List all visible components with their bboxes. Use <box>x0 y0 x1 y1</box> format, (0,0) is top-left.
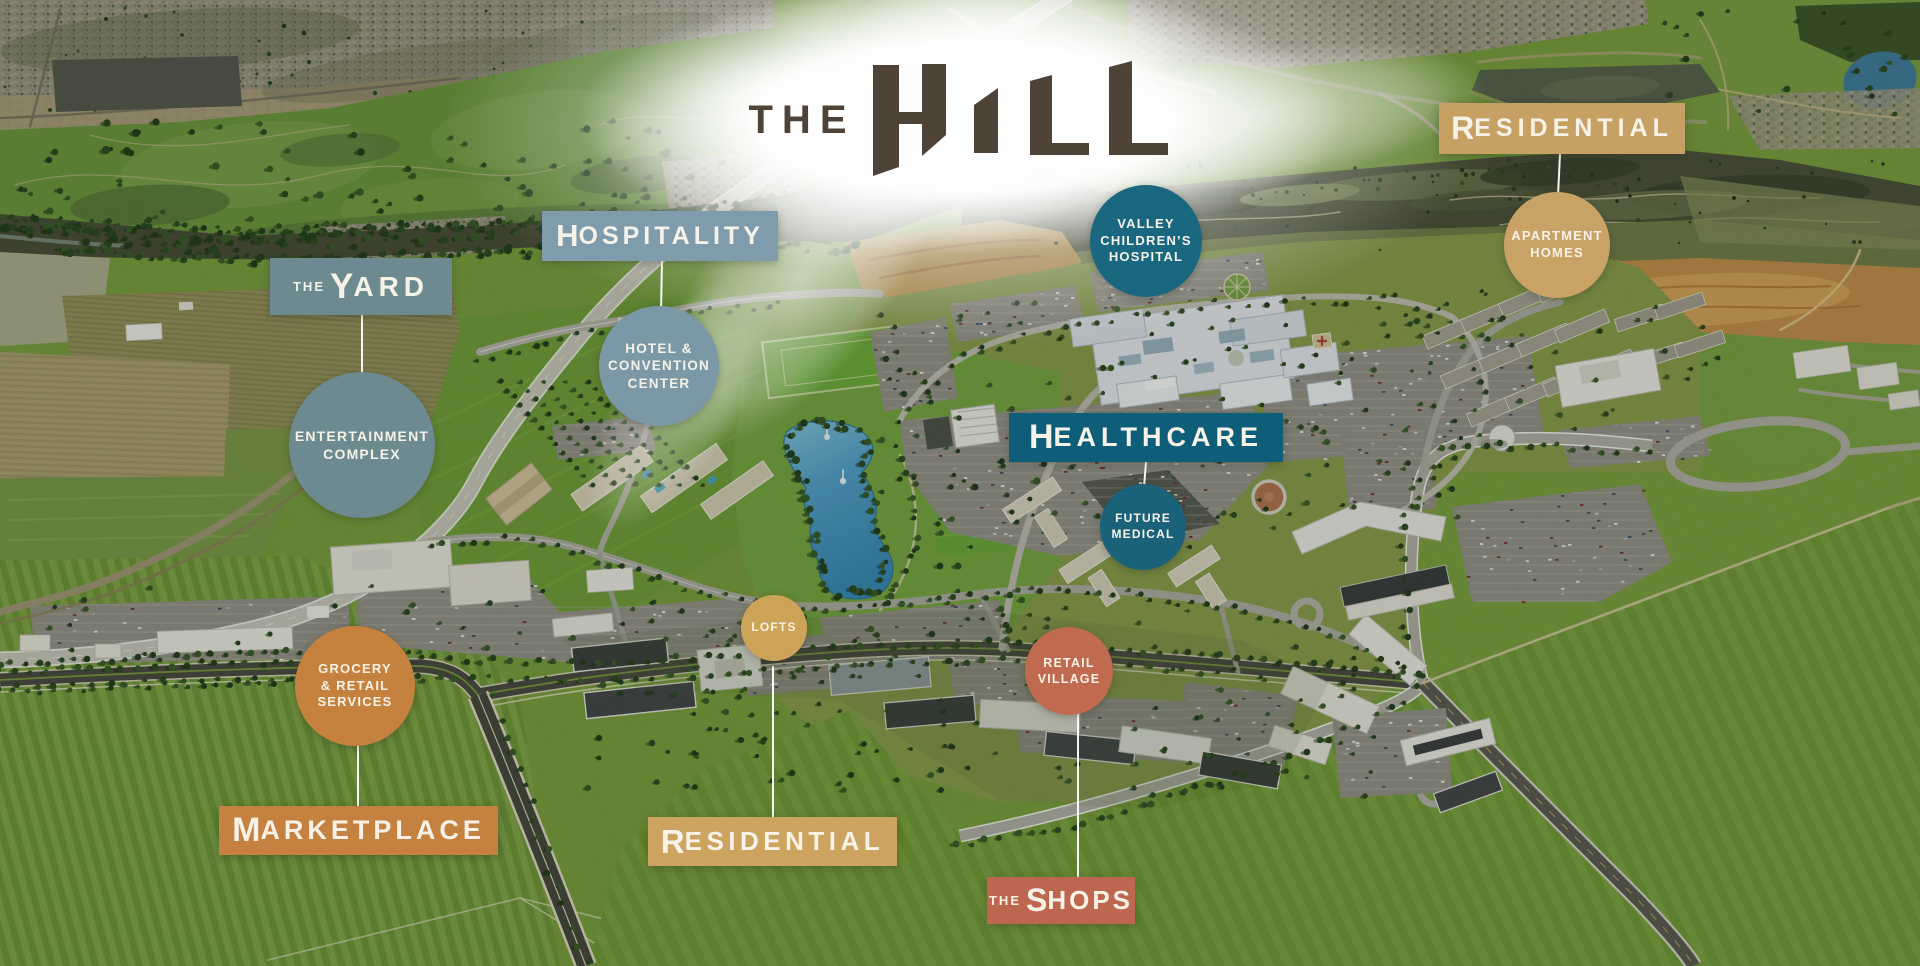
svg-text:THE: THE <box>749 98 856 142</box>
